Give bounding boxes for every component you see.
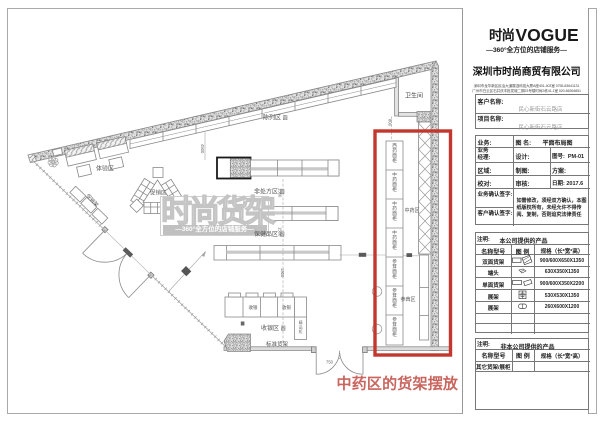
svg-text:1500: 1500 (278, 188, 283, 198)
svg-text:收银: 收银 (249, 304, 258, 311)
svg-text:柜: 柜 (392, 273, 397, 280)
svg-text:柜: 柜 (299, 329, 303, 334)
svg-text:800: 800 (387, 119, 392, 127)
svg-text:精: 精 (299, 320, 303, 325)
svg-text:标准货架: 标准货架 (266, 340, 289, 348)
svg-text:柜: 柜 (392, 157, 397, 164)
svg-text:卫生间: 卫生间 (405, 92, 423, 100)
svg-text:1500: 1500 (280, 268, 285, 278)
svg-text:柜: 柜 (392, 244, 397, 251)
svg-text:柜: 柜 (392, 331, 397, 338)
svg-text:中药区的货架摆放: 中药区的货架摆放 (337, 375, 459, 393)
svg-text:柜: 柜 (392, 302, 397, 309)
svg-text:中药区: 中药区 (405, 207, 420, 214)
svg-text:750: 750 (326, 360, 334, 365)
svg-text:收银: 收银 (282, 304, 291, 311)
svg-text:体验区: 体验区 (96, 165, 114, 173)
svg-text:收银区 圆: 收银区 圆 (261, 324, 286, 332)
svg-text:品: 品 (299, 325, 303, 330)
svg-text:柜: 柜 (392, 215, 397, 222)
svg-text:陈列区 圆: 陈列区 圆 (263, 114, 288, 122)
svg-text:4500: 4500 (200, 144, 205, 154)
svg-text:参茸区: 参茸区 (401, 296, 416, 303)
svg-text:柜: 柜 (392, 186, 397, 193)
